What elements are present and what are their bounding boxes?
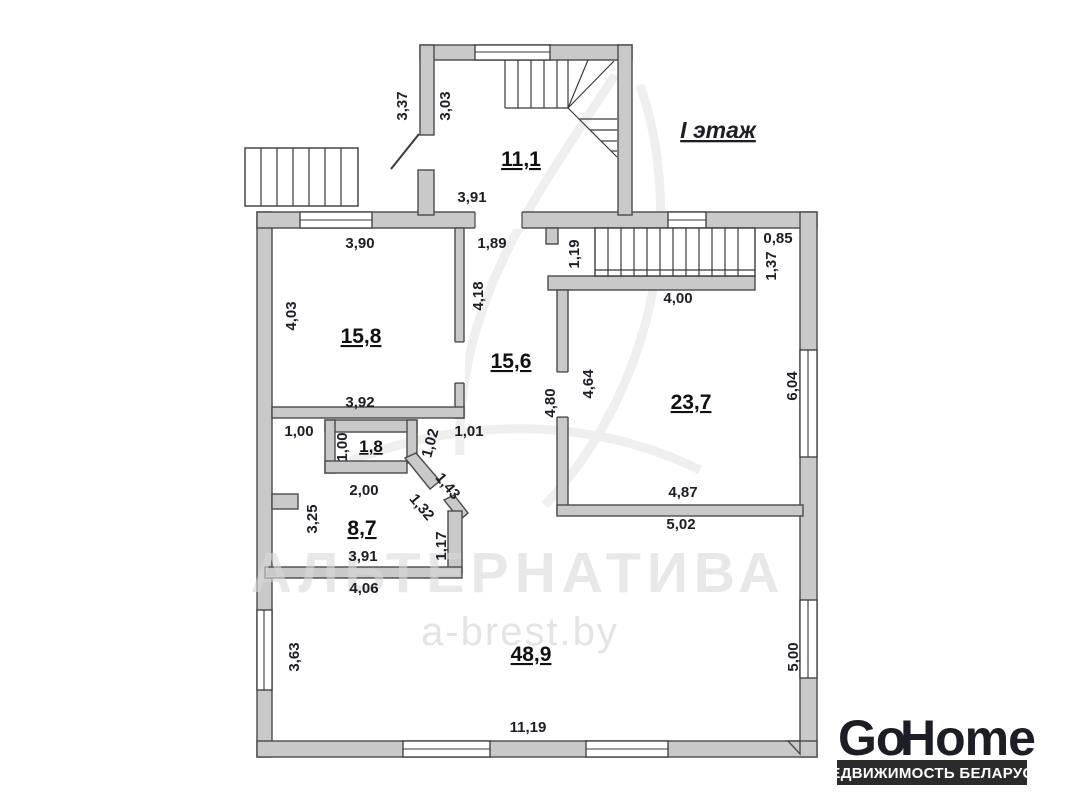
room-area-label: 15,6	[491, 350, 532, 373]
dimension-label: 3,91	[457, 189, 486, 206]
dimension-label: 1,00	[284, 423, 313, 440]
room-area-label: 8,7	[347, 517, 376, 540]
dimension-label: 1,37	[763, 251, 780, 280]
dimension-label: 11,19	[510, 719, 547, 736]
dimension-label: 0,85	[763, 230, 792, 247]
logo-tagline: НЕДВИЖИМОСТЬ БЕЛАРУСИ	[819, 765, 1044, 782]
door-opening	[475, 211, 522, 229]
dimension-label: 3,25	[304, 504, 321, 533]
wall-segment	[420, 45, 434, 135]
dimension-label: 6,04	[784, 371, 801, 401]
dimension-label: 1,00	[334, 432, 351, 461]
watermark-brand: АЛЬТЕРНАТИВА	[251, 541, 786, 605]
staircase-right	[595, 228, 755, 276]
window	[403, 741, 490, 757]
wall-segment	[325, 420, 417, 432]
dimension-label: 3,03	[437, 91, 454, 120]
dimension-label: 4,64	[580, 369, 597, 399]
room-area-label: 23,7	[671, 391, 712, 414]
dimension-label: 4,03	[283, 301, 300, 330]
window	[668, 212, 706, 228]
wall-segment	[557, 290, 568, 372]
staircase-top	[505, 60, 617, 157]
floor-title: I этаж	[680, 117, 757, 143]
dimension-label: 2,00	[349, 482, 378, 499]
window	[800, 350, 817, 457]
wall-segment	[257, 741, 817, 757]
dimension-label: 4,87	[668, 484, 697, 501]
room-area-label: 48,9	[511, 643, 552, 666]
gohome-logo: Go Home НЕДВИЖИМОСТЬ БЕЛАРУСИ	[819, 710, 1044, 785]
window	[257, 610, 272, 690]
room-area-label: 15,8	[341, 325, 382, 348]
wall-segment	[618, 45, 632, 215]
porch-steps	[245, 148, 358, 206]
wall-segment	[272, 494, 298, 509]
dimension-label: 4,00	[663, 290, 692, 307]
wall-segment	[548, 276, 755, 290]
window	[800, 600, 817, 678]
door-swing-line	[391, 134, 419, 169]
dimension-label: 1,43	[432, 470, 464, 503]
dimension-label: 1,32	[406, 491, 438, 524]
dimension-label: 3,92	[345, 394, 374, 411]
dimension-label: 4,06	[349, 580, 378, 597]
dimension-label: 3,90	[345, 235, 374, 252]
dimension-label: 5,00	[785, 642, 802, 671]
window	[586, 741, 668, 757]
dimension-label: 1,19	[566, 239, 583, 268]
wall-segment	[325, 461, 407, 473]
dimension-label: 4,18	[470, 281, 487, 310]
logo-home: Home	[900, 710, 1035, 766]
dimension-label: 3,37	[394, 91, 411, 120]
dimension-label: 1,02	[418, 427, 442, 460]
dimension-label: 3,63	[286, 642, 303, 671]
wall-segment	[557, 505, 803, 516]
logo-go: Go	[838, 710, 905, 766]
room-area-label: 1,8	[359, 437, 383, 456]
floor-plan-drawing: АЛЬТЕРНАТИВА a-brest.by I этаж 11,1 15,8…	[0, 0, 1068, 800]
wall-segment	[418, 170, 434, 215]
wall-segment	[455, 228, 464, 342]
dimension-label: 1,01	[454, 423, 483, 440]
window	[300, 212, 372, 228]
floor-plan-page: АЛЬТЕРНАТИВА a-brest.by I этаж 11,1 15,8…	[0, 0, 1068, 800]
wall-segment	[557, 417, 568, 514]
dimension-label: 1,17	[433, 531, 450, 560]
dimension-label: 1,89	[477, 235, 506, 252]
window	[475, 45, 550, 60]
dimension-label: 4,80	[542, 388, 559, 417]
dimension-label: 3,91	[348, 548, 377, 565]
wall-segment	[546, 228, 558, 244]
door-opening	[454, 342, 465, 383]
dimension-label: 5,02	[666, 516, 695, 533]
room-area-label: 11,1	[501, 148, 541, 171]
